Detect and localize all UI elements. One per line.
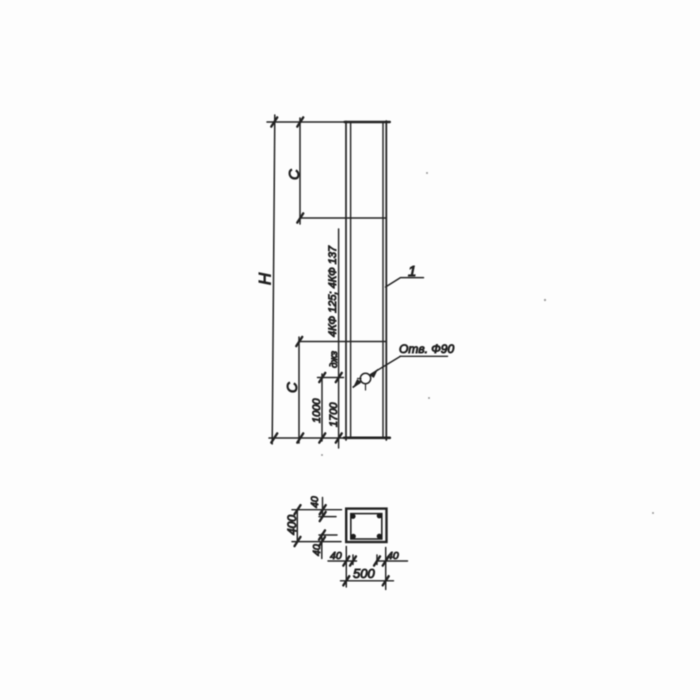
svg-text:1: 1 xyxy=(408,263,416,280)
svg-text:40: 40 xyxy=(311,544,323,556)
svg-text:40: 40 xyxy=(309,496,321,508)
svg-text:500: 500 xyxy=(353,566,375,581)
svg-text:1000: 1000 xyxy=(311,398,323,423)
svg-text:H: H xyxy=(256,272,275,285)
svg-text:джз: джз xyxy=(329,351,340,368)
svg-text:1700: 1700 xyxy=(328,402,340,427)
svg-text:40: 40 xyxy=(330,550,342,562)
svg-text:400: 400 xyxy=(285,515,299,535)
svg-text:4КФ 125; 4КФ 137: 4КФ 125; 4КФ 137 xyxy=(327,245,339,337)
svg-text:C: C xyxy=(284,382,301,393)
svg-text:40: 40 xyxy=(387,550,399,562)
svg-text:C: C xyxy=(286,169,303,180)
svg-text:Отв. Ф90: Отв. Ф90 xyxy=(399,342,454,356)
